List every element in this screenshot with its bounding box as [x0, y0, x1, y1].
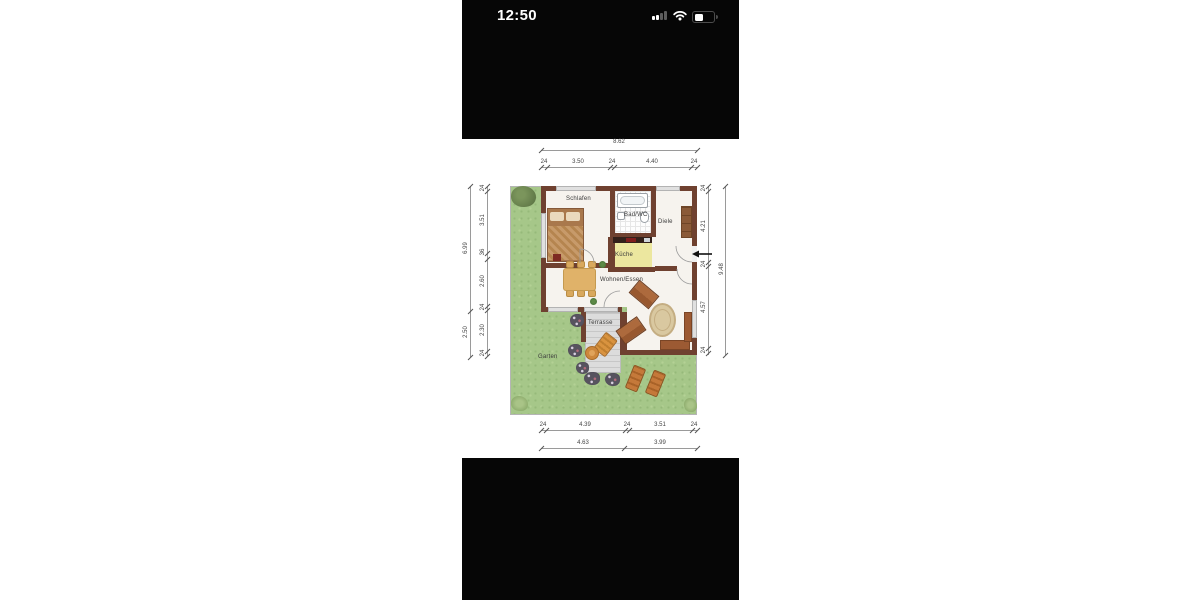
- bedside-object: [553, 254, 561, 261]
- dining-chair: [566, 290, 574, 297]
- dining-chair: [588, 290, 596, 297]
- dining-chair: [566, 261, 574, 268]
- wall-hall-bottom: [655, 266, 677, 271]
- status-icons: [652, 9, 732, 23]
- dim-label: 2.30: [479, 320, 487, 340]
- room-label-schlafen: Schlafen: [566, 196, 591, 202]
- dim-label: 3.51: [648, 422, 672, 428]
- room-label-diele: Diele: [658, 219, 673, 225]
- dim-label: 24: [682, 159, 706, 165]
- wardrobe: [681, 206, 692, 238]
- bathtub-inner: [620, 196, 645, 205]
- dim-label: 24: [600, 159, 624, 165]
- dim-label: 24: [682, 422, 706, 428]
- window-top-hall: [656, 186, 680, 191]
- room-label-wohnen: Wohnen/Essen: [600, 277, 643, 283]
- dimension-mark: [708, 186, 709, 355]
- dining-chair: [588, 261, 596, 268]
- dim-label: 3.99: [648, 440, 672, 446]
- dim-label: 3.51: [479, 210, 487, 230]
- dim-label: 24: [700, 340, 708, 360]
- dim-label: 24: [531, 422, 555, 428]
- dim-label: 24: [479, 178, 487, 198]
- dimension-mark: [487, 186, 488, 356]
- shrub: [570, 314, 584, 327]
- screen: 12:50: [0, 0, 1200, 600]
- shrub: [584, 372, 600, 385]
- dim-label: 24: [700, 254, 708, 274]
- dim-label: 4.57: [700, 297, 708, 317]
- potted-plant: [599, 261, 606, 268]
- dim-label: 6.99: [462, 238, 470, 258]
- window-right-living: [692, 300, 697, 338]
- bottom-black-bar: [462, 458, 739, 600]
- terrace-table-top: [589, 350, 595, 356]
- cellular-signal-icon: [652, 11, 669, 20]
- dimension-mark: [470, 186, 471, 357]
- dim-label: 3.50: [566, 159, 590, 165]
- room-label-garten: Garten: [538, 354, 558, 360]
- shrub: [605, 373, 620, 386]
- dimension-mark: [541, 430, 697, 431]
- dim-label: 2.60: [479, 271, 487, 291]
- wall-kitchen-bottom: [608, 267, 655, 272]
- window-top-bedroom: [556, 186, 596, 191]
- dimension-mark: [541, 150, 697, 151]
- wall-bottom-right: [620, 350, 697, 355]
- window-living-south-a: [548, 307, 578, 312]
- tree: [511, 186, 536, 207]
- bush: [684, 398, 697, 412]
- window-living-south-b: [584, 307, 618, 312]
- wifi-icon: [673, 10, 687, 21]
- dim-label: 24: [700, 178, 708, 198]
- dim-label: 4.63: [571, 440, 595, 446]
- kitchen-sink: [644, 238, 650, 242]
- battery-icon: [692, 11, 715, 23]
- bed-pillow: [566, 212, 580, 221]
- shrub: [568, 344, 582, 357]
- room-label-terrasse: Terrasse: [588, 320, 613, 326]
- dining-chair: [577, 261, 585, 268]
- dim-label: 4.40: [640, 159, 664, 165]
- dim-label: 8.62: [607, 139, 631, 145]
- bed-pillow: [550, 212, 564, 221]
- window-left: [541, 213, 546, 258]
- wall-bath-right: [651, 191, 656, 233]
- dim-label: 9.48: [718, 259, 726, 279]
- dim-label: 24: [479, 343, 487, 363]
- dim-label: 2.50: [462, 322, 470, 342]
- entrance-opening: [692, 246, 697, 262]
- dim-label: 24: [479, 297, 487, 317]
- status-bar-area: 12:50: [462, 0, 739, 139]
- stove: [626, 238, 636, 242]
- dim-label: 24: [615, 422, 639, 428]
- potted-plant: [590, 298, 597, 305]
- dimension-mark: [541, 448, 697, 449]
- battery-nub: [716, 15, 718, 19]
- corner-bench: [684, 312, 692, 342]
- clock: 12:50: [497, 7, 537, 24]
- rug-inner-ring: [654, 309, 671, 331]
- bush: [511, 396, 528, 411]
- room-label-kueche: Küche: [615, 252, 633, 258]
- dim-label: 36: [479, 242, 487, 262]
- dining-chair: [577, 290, 585, 297]
- dim-label: 4.39: [573, 422, 597, 428]
- room-label-badwc: Bad/WC: [624, 212, 648, 218]
- dim-label: 4.21: [700, 216, 708, 236]
- dining-table: [563, 268, 596, 291]
- dim-label: 24: [532, 159, 556, 165]
- battery-fill: [695, 14, 703, 21]
- dimension-mark: [541, 167, 697, 168]
